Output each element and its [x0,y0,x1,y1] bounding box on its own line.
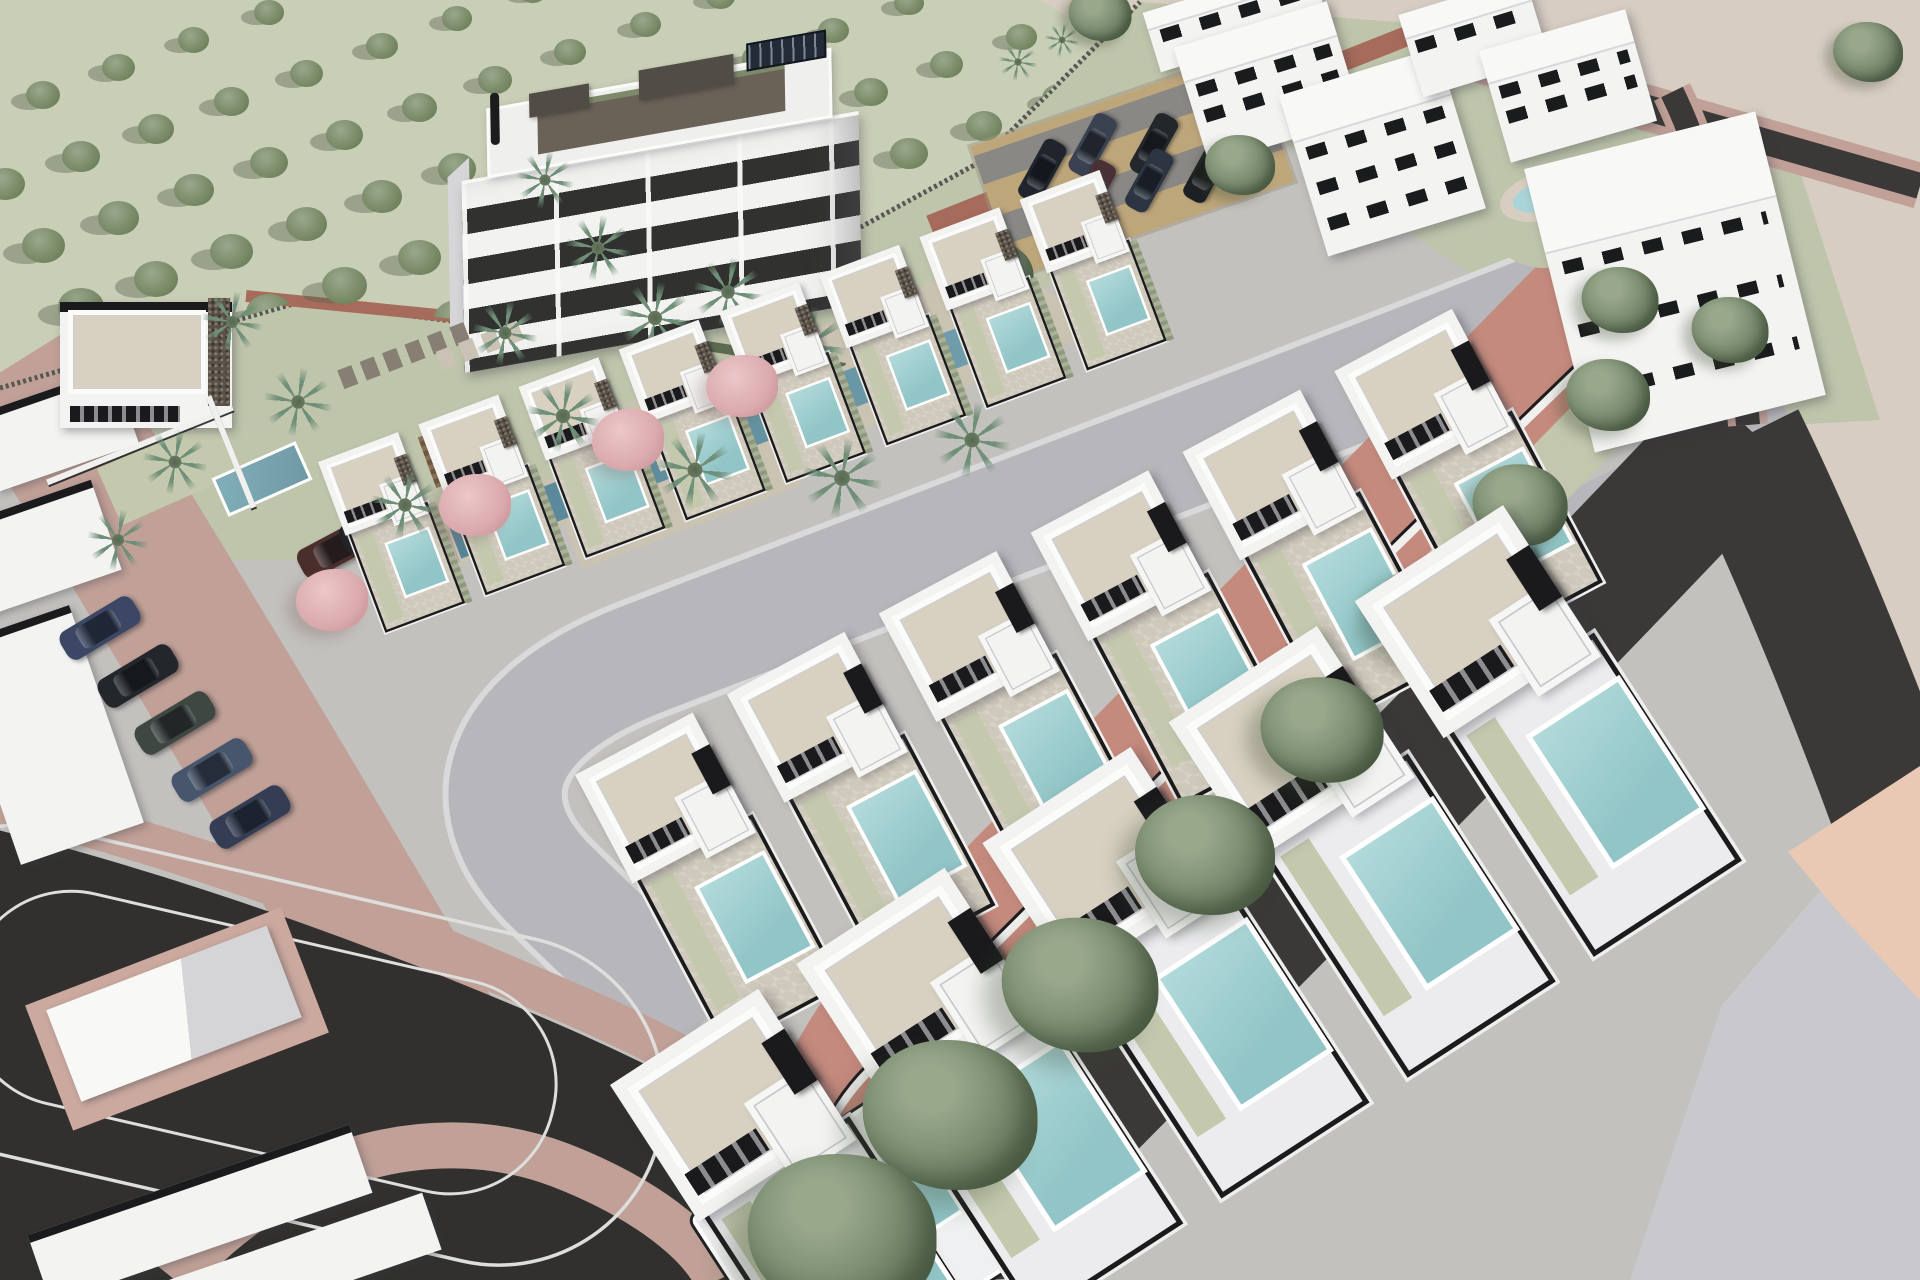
pink-flowering-tree [706,355,778,417]
green-tree [1205,135,1275,195]
corner-villa-roof-terrace [68,310,206,394]
orchard-tree [362,180,402,213]
villa-pool [986,302,1051,374]
villa-pool [1086,264,1151,336]
orchard-tree [62,141,100,172]
palm-tree [263,367,333,437]
palm-tree [933,401,1011,479]
orchard-tree [98,201,139,235]
orchard-tree [102,54,135,81]
glazing-strip [70,406,180,422]
orchard-tree [630,12,661,37]
orchard-tree [138,114,174,144]
palm-tree [801,437,883,519]
pink-flowering-tree [296,569,368,631]
development-aerial-render [0,0,1920,1280]
palm-tree [370,470,440,540]
orchard-tree [930,51,963,78]
orchard-tree [254,0,284,25]
orchard-tree [706,0,735,9]
palm-tree [201,291,263,353]
green-tree [1833,22,1903,82]
orchard-tree [174,174,214,206]
palm-tree [656,431,734,509]
palm-tree [526,379,600,453]
orchard-tree [326,120,363,150]
villa-pool [885,339,950,411]
palm-tree [565,215,631,281]
palm-tree [472,300,538,366]
pink-flowering-tree [592,409,664,471]
orchard-tree [966,111,1002,141]
orchard-tree [894,0,924,15]
orchard-tree [210,234,253,269]
orchard-tree [214,87,249,116]
orchard-tree [0,168,25,200]
green-tree [1582,267,1659,333]
pink-flowering-tree [439,474,511,536]
orchard-tree [442,6,472,31]
orchard-tree [26,81,60,109]
palm-tree [87,509,149,571]
parked-car [1122,146,1176,215]
orchard-tree [890,138,928,169]
orchard-tree [402,93,437,122]
chimney-pipe [490,93,500,145]
orchard-tree [366,33,398,59]
orchard-tree [22,228,65,263]
orchard-tree [290,60,323,87]
orchard-tree [398,240,441,275]
orchard-tree [178,27,209,53]
palm-tree [516,151,575,210]
palm-tree [142,429,208,495]
orchard-tree [250,147,288,178]
orchard-tree [286,207,327,241]
palm-tree [999,43,1038,82]
green-tree [1692,297,1769,363]
orchard-tree [518,0,547,3]
